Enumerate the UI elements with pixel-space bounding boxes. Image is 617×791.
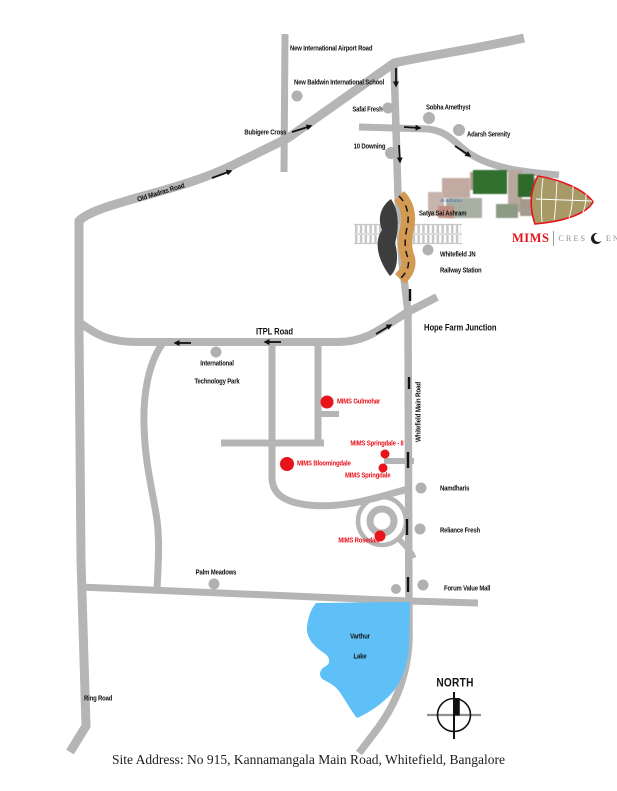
landmark-dot-baldwin-school [292, 91, 303, 102]
landmark-dot-sobha-amethyst [423, 112, 435, 124]
crescenta-plot-wedge [523, 168, 603, 230]
label-ring-road: Ring Road [84, 696, 112, 703]
arrow [399, 145, 400, 162]
label-varthur-line2: Lake [354, 654, 367, 661]
station-area-shape [378, 199, 398, 276]
road-west-curve [144, 343, 163, 591]
label-mims-springdale-2: MIMS Springdale - II [351, 441, 404, 448]
label-north: NORTH [436, 678, 473, 690]
logo-project-post: ENTA [606, 233, 617, 243]
label-varthur-line1: Varthur [350, 634, 370, 641]
landmark-dot-adarsh-serenity [453, 124, 465, 136]
landmark-dot-namdharis [416, 483, 427, 494]
label-safal-fresh: Safal Fresh [353, 107, 383, 114]
compass-needle [455, 698, 460, 716]
label-whitefield-main-road: Whitefield Main Road [416, 382, 423, 442]
mims-dot-springdale-2 [381, 450, 390, 459]
photo-watermark: Aradhana [440, 198, 462, 204]
landmark-dot-10-downing [385, 147, 397, 159]
label-hope-farm-junction: Hope Farm Junction [424, 324, 496, 333]
map-base-graphics [0, 0, 617, 791]
label-forum-value-mall: Forum Value Mall [444, 586, 490, 593]
photo-block [442, 178, 470, 198]
label-namdharis: Namdharis [440, 486, 469, 493]
logo-project-pre: CRES [558, 233, 586, 243]
label-itpl-road: ITPL Road [256, 328, 293, 337]
photo-block [496, 204, 518, 218]
mims-crescenta-logo: MIMS CRES ENTA [512, 228, 617, 248]
label-satya-sai-ashram: Satya Sai Ashram [419, 211, 466, 218]
logo-divider [553, 231, 554, 246]
label-tech-park-line2: Technology Park [195, 379, 240, 386]
label-mims-rosedale: MIMS Rosedale [339, 538, 380, 545]
landmark-dot-forum-west [391, 584, 401, 594]
label-mims-gulmohar: MIMS Gulmohar [337, 399, 380, 406]
crescent-icon [591, 233, 602, 244]
landmark-dot-reliance-fresh [415, 524, 426, 535]
road-inner-a [272, 342, 408, 506]
label-sobha-amethyst: Sobha Amethyst [426, 105, 470, 112]
landmark-dot-palm-meadows [209, 579, 220, 590]
label-palm-meadows: Palm Meadows [196, 570, 237, 577]
landmark-dot-railway-station [423, 245, 434, 256]
label-adarsh-serenity: Adarsh Serenity [467, 132, 510, 139]
compass [427, 692, 481, 739]
landmark-dot-tech-park [211, 347, 222, 358]
arrow [404, 127, 420, 128]
landmark-dot-safal-fresh [383, 103, 394, 114]
site-address: Site Address: No 915, Kannamangala Main … [112, 752, 505, 768]
label-baldwin-school: New Baldwin International School [294, 80, 384, 87]
road-palm-meadows [80, 587, 409, 601]
label-whitefield-jn-line1: Whitefield JN [440, 252, 475, 259]
label-mims-bloomingdale: MIMS Bloomingdale [297, 461, 351, 468]
location-map: Aradhana New International Airport Road … [0, 0, 617, 791]
photo-green-field [473, 170, 507, 194]
road-airport [284, 34, 285, 172]
logo-brand-text: MIMS [512, 231, 549, 246]
label-mims-springdale: MIMS Springdale [345, 473, 390, 480]
label-10-downing: 10 Downing [353, 144, 385, 151]
label-whitefield-jn-line2: Railway Station [440, 268, 481, 275]
landmark-dot-forum-east [418, 580, 429, 591]
label-airport-road: New International Airport Road [290, 46, 372, 53]
label-bubigere-cross: Bubigere Cross [244, 130, 286, 137]
mims-dot-springdale [379, 464, 388, 473]
mims-dot-bloomingdale [280, 457, 294, 471]
roundabout-inner [370, 509, 394, 533]
road-forum-stub [409, 601, 478, 603]
label-tech-park-line1: International [200, 361, 233, 368]
mims-dot-gulmohar [321, 396, 334, 409]
label-reliance-fresh: Reliance Fresh [440, 528, 480, 535]
